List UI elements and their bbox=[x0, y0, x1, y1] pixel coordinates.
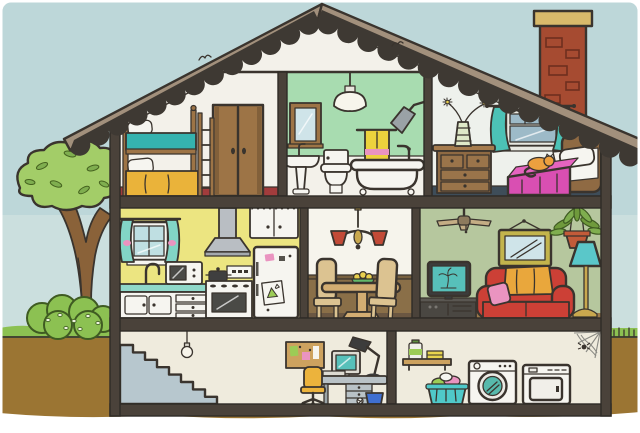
desk-top bbox=[320, 376, 387, 384]
main-floor-beam bbox=[110, 318, 611, 331]
pin-board bbox=[286, 342, 324, 368]
bottom-blanket bbox=[126, 171, 198, 196]
lawn-right bbox=[611, 328, 640, 338]
childs-drawing bbox=[262, 281, 285, 305]
left-wall bbox=[110, 124, 120, 416]
detergent-bottle bbox=[409, 340, 422, 360]
throw-blanket bbox=[504, 266, 553, 295]
closet-handle bbox=[242, 148, 246, 154]
chimney-cap bbox=[534, 11, 592, 26]
crumpled-paper bbox=[357, 398, 363, 404]
room-dining: Dining room (main floor, middle) bbox=[308, 207, 412, 319]
attic-divider-left bbox=[278, 72, 287, 196]
main-divider-right bbox=[412, 208, 420, 318]
sofa-cushion bbox=[487, 282, 511, 306]
stove bbox=[206, 266, 252, 318]
basement-divider bbox=[387, 331, 396, 404]
microwave bbox=[166, 262, 202, 284]
kitchen-window bbox=[118, 219, 180, 265]
refrigerator bbox=[254, 247, 298, 318]
countertop bbox=[118, 284, 214, 292]
illustration-page: Cartoon cutaway cross-section of a two-s… bbox=[0, 0, 640, 433]
main-divider-left bbox=[300, 208, 308, 318]
upper-cabinet bbox=[250, 204, 298, 238]
attic-floor-beam bbox=[110, 196, 611, 208]
right-wall bbox=[601, 138, 611, 416]
lamp-pole bbox=[584, 266, 588, 310]
shelf-board bbox=[403, 359, 451, 365]
flower bbox=[443, 98, 452, 106]
fridge-magnet bbox=[265, 253, 275, 261]
closet-handle bbox=[231, 148, 235, 154]
sofa bbox=[477, 266, 574, 318]
house-cutaway-illustration: Cartoon cutaway cross-section of a two-s… bbox=[0, 0, 640, 433]
fridge-magnet bbox=[279, 256, 285, 261]
tv-set bbox=[418, 262, 478, 318]
attic-divider-right bbox=[424, 72, 432, 196]
waste-bin bbox=[366, 393, 383, 404]
closet bbox=[213, 105, 263, 196]
curtain-tie bbox=[123, 240, 131, 246]
room-kitchen: Kitchen (main floor, left) bbox=[118, 204, 300, 318]
washing-machine bbox=[469, 361, 516, 406]
basement-floor-beam bbox=[110, 404, 611, 416]
curtain-tie bbox=[168, 240, 176, 246]
dresser bbox=[433, 145, 495, 193]
mirror-cabinet bbox=[288, 103, 323, 148]
dryer bbox=[523, 365, 570, 406]
top-mattress bbox=[126, 133, 196, 150]
room-living: Living room (main floor, right) bbox=[418, 205, 604, 318]
towel-stripe bbox=[365, 149, 389, 155]
